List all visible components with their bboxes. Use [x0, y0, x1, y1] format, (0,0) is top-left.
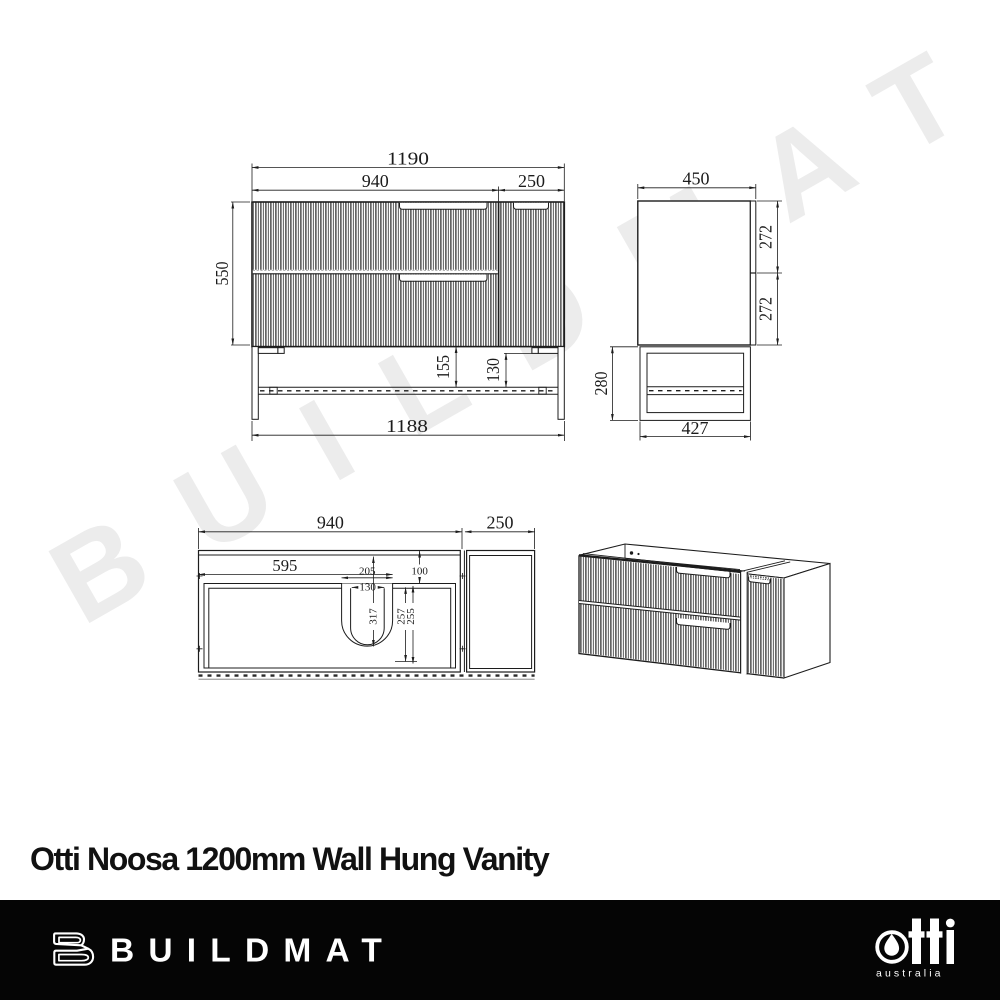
svg-text:317: 317 — [368, 608, 380, 625]
svg-text:427: 427 — [682, 418, 709, 438]
svg-text:940: 940 — [362, 171, 389, 191]
svg-text:1188: 1188 — [386, 416, 428, 436]
svg-text:1190: 1190 — [387, 149, 429, 169]
svg-text:550: 550 — [212, 262, 232, 286]
svg-text:130: 130 — [359, 581, 376, 593]
svg-text:272: 272 — [756, 225, 776, 249]
svg-text:280: 280 — [591, 372, 611, 396]
svg-text:155: 155 — [433, 355, 453, 379]
svg-text:130: 130 — [483, 358, 503, 382]
svg-text:250: 250 — [518, 171, 545, 191]
svg-text:272: 272 — [756, 297, 776, 321]
svg-text:255: 255 — [405, 608, 417, 625]
svg-text:Otti Noosa 1200mm Wall Hung Va: Otti Noosa 1200mm Wall Hung Vanity — [30, 841, 550, 877]
svg-text:450: 450 — [683, 169, 710, 189]
svg-text:100: 100 — [411, 566, 428, 578]
svg-text:BUILDMAT: BUILDMAT — [110, 933, 396, 970]
svg-text:940: 940 — [317, 513, 344, 533]
svg-text:595: 595 — [272, 556, 297, 575]
svg-text:australia: australia — [876, 968, 944, 980]
svg-text:250: 250 — [487, 513, 514, 533]
